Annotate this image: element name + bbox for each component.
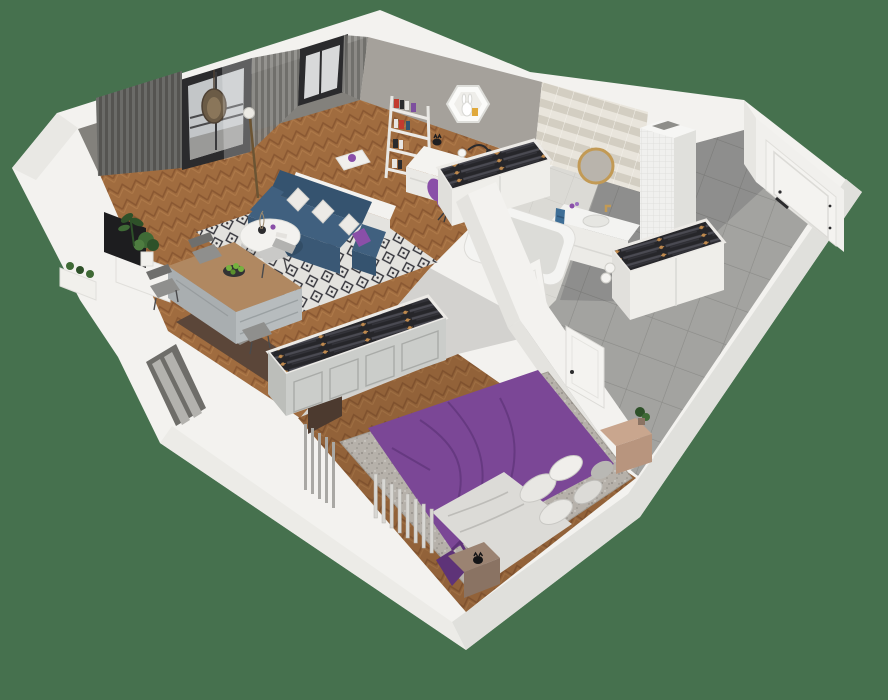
yellow-book: [472, 108, 478, 116]
floor-plan-canvas: [0, 0, 888, 700]
vase: [258, 226, 266, 234]
bench-cushion: [348, 154, 356, 162]
plant-pot: [638, 418, 645, 425]
door-lock: [778, 190, 781, 193]
hexagon-shelf: [447, 86, 489, 122]
rolled-towel: [601, 273, 611, 283]
door-handle: [570, 370, 574, 374]
plant-pot: [141, 252, 153, 266]
cosmetics: [570, 204, 575, 209]
rolled-towel: [605, 263, 615, 273]
door-hinge: [829, 227, 832, 230]
door-hinge: [829, 205, 832, 208]
bottle: [270, 224, 275, 229]
sink: [583, 215, 609, 227]
